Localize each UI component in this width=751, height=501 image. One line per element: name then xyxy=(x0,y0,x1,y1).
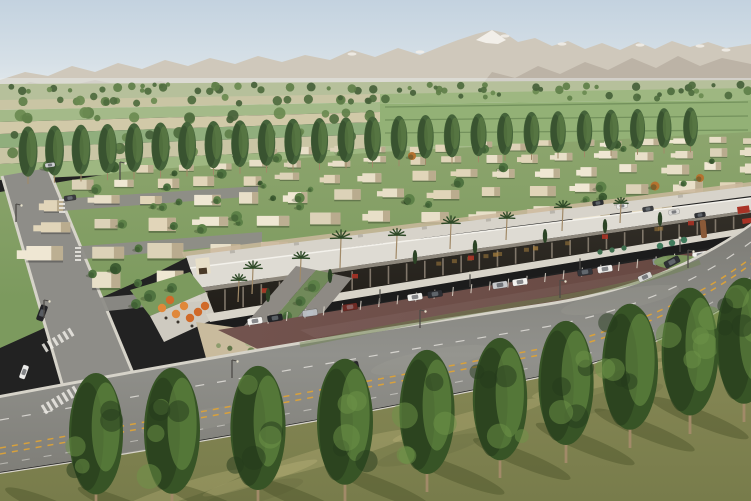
tree-crown-light xyxy=(423,360,452,451)
house-shadow xyxy=(530,196,556,198)
house-annex xyxy=(673,185,680,192)
distant-tree xyxy=(110,97,118,105)
house-shadow xyxy=(95,228,118,230)
house-annex xyxy=(88,198,96,203)
tree-crown-light xyxy=(133,127,143,163)
house-annex xyxy=(427,193,435,198)
tree-crown-light xyxy=(26,130,36,167)
house-shadow xyxy=(41,232,70,234)
distant-tree xyxy=(582,90,587,95)
foliage-bump xyxy=(100,409,123,432)
crosswalk-bar xyxy=(75,255,81,257)
tree-crown-shade xyxy=(170,224,175,229)
house-shadow xyxy=(743,144,751,145)
house-shadow xyxy=(193,186,214,187)
distant-tree xyxy=(434,85,438,89)
house-shade-side xyxy=(471,169,478,177)
tree-crown-shade xyxy=(150,205,154,209)
umbrella xyxy=(186,314,194,322)
house xyxy=(486,155,502,164)
storefront-glass xyxy=(483,254,488,258)
distant-tree xyxy=(133,100,140,107)
house-shadow xyxy=(675,158,693,159)
distant-tree xyxy=(187,96,196,105)
storefront-column xyxy=(715,219,717,232)
snow-patch xyxy=(348,52,357,55)
snow-patch xyxy=(416,50,425,53)
house-shade-side xyxy=(631,164,637,172)
house xyxy=(743,138,751,145)
house-shadow xyxy=(194,205,221,207)
house xyxy=(626,184,648,195)
crosswalk-bar xyxy=(75,251,81,253)
storefront-glass xyxy=(533,246,538,250)
house-shadow xyxy=(482,196,500,198)
foliage-bump xyxy=(598,313,617,332)
storefront-column xyxy=(678,224,680,237)
foliage-bump xyxy=(692,327,709,344)
tree-crown-shade xyxy=(408,154,413,159)
distant-tree xyxy=(286,83,295,92)
cypress-tree xyxy=(603,219,607,233)
snow-patch xyxy=(696,44,705,47)
house-shade-side xyxy=(716,162,721,170)
tree-crown-shade xyxy=(270,197,274,201)
house-shade-side xyxy=(428,171,435,181)
house-annex xyxy=(284,163,288,167)
tree-crown-light xyxy=(557,114,565,144)
house-shade-side xyxy=(721,137,726,143)
house-shadow xyxy=(710,157,727,158)
foliage-bump xyxy=(392,402,418,428)
distant-tree xyxy=(140,88,145,93)
house-shade-side xyxy=(114,247,124,259)
house-annex xyxy=(492,172,497,177)
house-roof xyxy=(745,147,751,156)
house-shade-side xyxy=(722,148,727,156)
house-shadow xyxy=(280,180,299,181)
storefront-column xyxy=(479,253,481,270)
house-shadow xyxy=(412,181,435,182)
house-shade-side xyxy=(497,155,502,163)
house-annex xyxy=(576,170,581,176)
ac-unit xyxy=(230,250,235,254)
distant-tree xyxy=(22,113,33,124)
tree-crown-shade xyxy=(88,272,94,278)
house-shadow xyxy=(599,159,617,160)
storefront-glass xyxy=(493,253,498,257)
house-shade-side xyxy=(567,153,573,161)
market-stall xyxy=(621,245,626,250)
foliage-bump xyxy=(717,320,732,335)
distant-tree xyxy=(688,90,694,96)
tree-crown-shade xyxy=(709,160,713,164)
house-shade-side xyxy=(331,213,341,225)
distant-tree xyxy=(103,99,110,106)
desert-shrub xyxy=(227,346,232,351)
foliage-bump xyxy=(137,464,162,489)
house-shade-side xyxy=(494,187,500,196)
house-shadow xyxy=(411,165,425,166)
distant-tree xyxy=(725,92,733,100)
distant-tree xyxy=(427,82,433,88)
house-shadow xyxy=(555,160,573,161)
tree-crown-light xyxy=(663,111,671,140)
house-shadow xyxy=(332,167,350,168)
distant-tree xyxy=(483,95,488,100)
snow-patch xyxy=(558,42,567,45)
crosswalk-bar xyxy=(42,343,49,352)
distant-tree xyxy=(457,82,464,89)
umbrella-canopy xyxy=(166,296,174,304)
umbrella-canopy xyxy=(158,304,166,312)
cypress-tree xyxy=(473,240,477,254)
distant-tree xyxy=(234,82,241,89)
house-annex xyxy=(600,143,605,147)
storefront-column xyxy=(551,243,553,258)
market-stall xyxy=(597,249,602,254)
light-head xyxy=(379,287,382,290)
distant-tree xyxy=(458,94,463,99)
house-shade-side xyxy=(127,180,133,187)
tree-crown-shade xyxy=(596,185,603,192)
house-shade-side xyxy=(226,164,231,170)
house-annex xyxy=(740,167,746,173)
house-annex xyxy=(451,171,457,176)
storefront-red-sign xyxy=(468,256,474,261)
house-shadow xyxy=(114,187,133,188)
house-shadow xyxy=(334,200,360,202)
distant-tree xyxy=(128,82,136,90)
house-shadow xyxy=(486,163,502,164)
light-head xyxy=(579,256,582,259)
distant-tree xyxy=(678,88,683,93)
distant-tree xyxy=(408,86,412,90)
distant-tree xyxy=(90,93,97,100)
foliage-bump xyxy=(425,373,443,391)
distant-tree xyxy=(737,81,745,89)
house-shadow xyxy=(287,168,301,169)
foliage-bump xyxy=(495,365,517,387)
house-shade-side xyxy=(380,156,386,162)
distant-tree xyxy=(304,95,313,104)
house-annex xyxy=(320,177,325,182)
distant-tree xyxy=(194,87,201,94)
house-shadow xyxy=(149,231,176,233)
house-annex xyxy=(328,163,333,167)
tree-crown-shade xyxy=(295,196,302,203)
house-shadow xyxy=(94,204,119,206)
house-shade-side xyxy=(648,152,654,160)
tree-crown-shade xyxy=(231,214,238,221)
house-shade-side xyxy=(397,189,404,198)
storefront-column xyxy=(406,263,408,281)
aerial-community-render xyxy=(0,0,751,501)
house-shadow xyxy=(497,178,515,179)
foliage-bump xyxy=(227,457,244,474)
house xyxy=(441,156,461,163)
house-annex xyxy=(33,225,42,231)
storefront-glass xyxy=(654,227,659,231)
distant-tree xyxy=(251,82,258,89)
cafe-table xyxy=(191,325,194,328)
storefront-column xyxy=(370,269,372,287)
tree-crown-light xyxy=(477,117,485,148)
tree-crown-shade xyxy=(134,282,139,287)
tree-crown-light xyxy=(610,113,618,143)
distant-tree xyxy=(667,88,675,96)
house-annex xyxy=(517,157,522,162)
tree-crown-light xyxy=(186,125,195,160)
distant-tree xyxy=(567,96,572,101)
house-shade-side xyxy=(51,246,63,260)
light-head xyxy=(692,250,694,252)
crosswalk-bar xyxy=(75,247,81,249)
tree-crown-light xyxy=(106,128,116,164)
tree-crown-shade xyxy=(144,294,152,302)
house-shade-side xyxy=(57,200,63,211)
tree-crown-shade xyxy=(197,227,204,234)
foliage-bump xyxy=(75,459,90,474)
house-shade-side xyxy=(641,184,648,194)
distant-tree xyxy=(329,114,339,124)
house-annex xyxy=(550,155,555,160)
tree-crown-light xyxy=(292,122,301,156)
house-shade-side xyxy=(591,167,596,176)
house-shadow xyxy=(324,183,340,184)
tree-crown-shade xyxy=(651,184,657,190)
foliage-bump xyxy=(470,364,485,379)
house-shade-side xyxy=(509,169,515,178)
tree-crown-light xyxy=(636,112,644,141)
tree-crown-light xyxy=(345,121,354,154)
tree-crown-light xyxy=(265,123,274,157)
house-shadow xyxy=(249,166,268,167)
tree-crown-shade xyxy=(308,284,316,292)
house-shadow xyxy=(26,260,63,262)
distant-tree xyxy=(7,148,18,159)
house-shadow xyxy=(368,222,390,224)
house xyxy=(299,147,313,155)
house-annex xyxy=(283,195,289,201)
house-shade-side xyxy=(611,151,617,159)
house-shade-side xyxy=(554,169,560,178)
market-umbrella xyxy=(657,243,663,249)
distant-tree xyxy=(129,112,139,122)
tree-crown-shade xyxy=(273,156,279,162)
house xyxy=(114,180,133,189)
house-roof xyxy=(745,164,751,174)
distant-tree xyxy=(583,82,590,89)
tree-crown-shade xyxy=(163,186,168,191)
distant-tree xyxy=(532,83,540,91)
house-shade-side xyxy=(335,175,340,183)
distant-tree xyxy=(338,95,343,100)
cypress-tree xyxy=(266,288,270,302)
distant-tree xyxy=(274,107,286,119)
house-annex xyxy=(671,153,676,157)
storefront-red-sign xyxy=(602,234,608,239)
storefront-red-sign xyxy=(352,274,358,279)
distant-tree xyxy=(563,83,571,91)
house-shade-side xyxy=(279,216,289,226)
distant-tree xyxy=(113,83,122,92)
tree-crown-shade xyxy=(172,172,176,176)
distant-tree xyxy=(18,97,27,106)
crosswalk-bar xyxy=(59,207,65,209)
storefront-column xyxy=(388,266,390,284)
house-annex xyxy=(364,158,369,162)
tree-crown-light xyxy=(168,378,197,470)
foliage-bump xyxy=(549,400,573,424)
snow-patch xyxy=(722,48,731,51)
house-shadow xyxy=(179,171,194,172)
house xyxy=(193,176,214,187)
distant-tree xyxy=(322,110,330,118)
distant-tree xyxy=(555,86,563,94)
storefront-column xyxy=(515,248,517,264)
foliage-bump xyxy=(347,391,367,411)
crosswalk-bar xyxy=(59,211,65,213)
house xyxy=(239,192,258,205)
tree-crown-shade xyxy=(308,188,312,192)
distant-tree xyxy=(11,131,19,139)
house-shade-side xyxy=(682,165,689,175)
umbrella xyxy=(172,310,180,318)
distant-tree xyxy=(144,88,151,95)
house-shade-side xyxy=(207,176,214,186)
house-annex xyxy=(740,150,745,155)
house-shade-side xyxy=(111,195,119,203)
tree-crown-shade xyxy=(404,197,411,204)
storefront-red-sign xyxy=(688,221,694,226)
tree-crown-light xyxy=(424,118,433,150)
house xyxy=(710,148,727,158)
cypress-tree xyxy=(328,269,332,283)
distant-tree xyxy=(152,83,156,87)
umbrella xyxy=(166,296,174,304)
house-shade-side xyxy=(381,147,385,152)
cypress-tree xyxy=(543,229,547,243)
ac-unit xyxy=(294,242,299,246)
ac-unit xyxy=(486,218,491,222)
distant-tree xyxy=(75,96,85,106)
distant-tree xyxy=(226,116,234,124)
distant-tree xyxy=(348,98,354,104)
tree-crown-shade xyxy=(135,247,140,252)
tree-crown-shade xyxy=(681,182,685,186)
foliage-bump xyxy=(717,298,733,314)
foliage-bump xyxy=(683,351,701,369)
house-shadow xyxy=(239,204,258,206)
distant-tree xyxy=(491,91,496,96)
storefront-column xyxy=(424,261,426,278)
entry-tower-door xyxy=(199,268,208,275)
crosswalk-bar xyxy=(75,259,81,261)
house-shadow xyxy=(745,174,751,175)
house-shadow xyxy=(362,182,381,183)
distant-tree xyxy=(184,112,195,123)
distant-tree xyxy=(410,90,416,96)
ac-unit xyxy=(358,234,363,238)
tree-crown-shade xyxy=(258,182,261,185)
house-shadow xyxy=(537,146,553,147)
distant-tree xyxy=(441,88,447,94)
tree-crown-shade xyxy=(261,185,265,189)
tree-crown-light xyxy=(504,116,512,147)
house-shade-side xyxy=(547,186,555,196)
distant-tree xyxy=(605,92,612,99)
tree-crown-shade xyxy=(454,181,461,188)
distant-tree xyxy=(206,88,213,95)
tree-crown-shade xyxy=(621,148,625,152)
distant-tree xyxy=(8,84,14,90)
house-shadow xyxy=(433,199,459,201)
light-head xyxy=(236,360,238,362)
tree-crown-light xyxy=(212,125,221,160)
distant-tree xyxy=(257,86,264,93)
house-annex xyxy=(535,172,541,177)
storefront-column xyxy=(624,232,626,246)
storefront-column xyxy=(733,217,735,229)
storefront-column xyxy=(697,222,699,235)
house-shade-side xyxy=(155,196,162,204)
tree-crown-shade xyxy=(131,302,138,309)
storefront-column xyxy=(242,287,244,307)
house-shadow xyxy=(580,176,596,177)
snow-patch xyxy=(501,34,510,37)
foliage-bump xyxy=(168,400,190,422)
distant-tree xyxy=(57,97,64,104)
scene-container xyxy=(0,0,751,501)
tree-crown-light xyxy=(318,122,327,155)
umbrella-canopy xyxy=(194,308,202,316)
umbrella-canopy xyxy=(172,310,180,318)
storefront-glass xyxy=(524,248,529,252)
house-shade-side xyxy=(532,155,537,163)
light-head xyxy=(469,272,472,275)
ac-unit xyxy=(422,226,427,230)
tree-crown-light xyxy=(80,129,90,165)
house-shadow xyxy=(540,178,560,179)
distant-tree xyxy=(26,89,31,94)
distant-tree xyxy=(79,107,90,118)
house xyxy=(257,216,289,228)
house xyxy=(72,180,94,191)
umbrella-canopy xyxy=(180,302,188,310)
foliage-bump xyxy=(487,424,512,449)
distant-tree xyxy=(369,85,377,93)
house-shadow xyxy=(704,170,721,171)
house-annex xyxy=(362,214,369,221)
tree-crown-light xyxy=(239,124,248,158)
house xyxy=(709,137,726,144)
desert-shrub xyxy=(216,343,221,348)
house-shadow xyxy=(441,162,461,163)
tree-crown-shade xyxy=(167,286,174,293)
distant-tree xyxy=(151,98,157,104)
house-shade-side xyxy=(172,179,179,188)
house-shade-side xyxy=(148,165,153,173)
storefront-glass xyxy=(565,241,570,245)
house-annex xyxy=(377,191,383,196)
storefront-column xyxy=(642,230,644,244)
house-shade-side xyxy=(172,243,184,258)
house-shade-side xyxy=(293,173,299,180)
distant-tree xyxy=(481,87,487,93)
house-shadow xyxy=(244,186,262,187)
distant-tree xyxy=(273,96,282,105)
